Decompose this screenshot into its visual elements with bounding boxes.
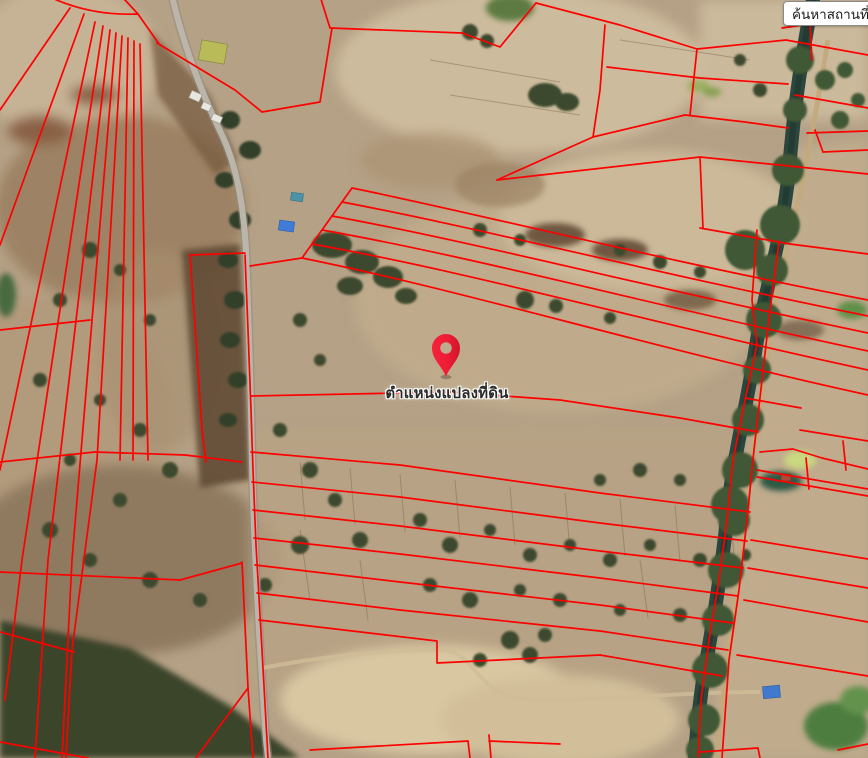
pond bbox=[198, 40, 227, 64]
satellite-map[interactable] bbox=[0, 0, 868, 758]
search-input[interactable] bbox=[783, 1, 868, 26]
blue-roof-building bbox=[278, 220, 294, 232]
pin-label: ตำแหน่งแปลงที่ดิน bbox=[385, 381, 508, 405]
blue-roof-building bbox=[763, 685, 781, 698]
map-viewport[interactable] bbox=[0, 0, 868, 758]
terrain-fields bbox=[0, 0, 868, 758]
